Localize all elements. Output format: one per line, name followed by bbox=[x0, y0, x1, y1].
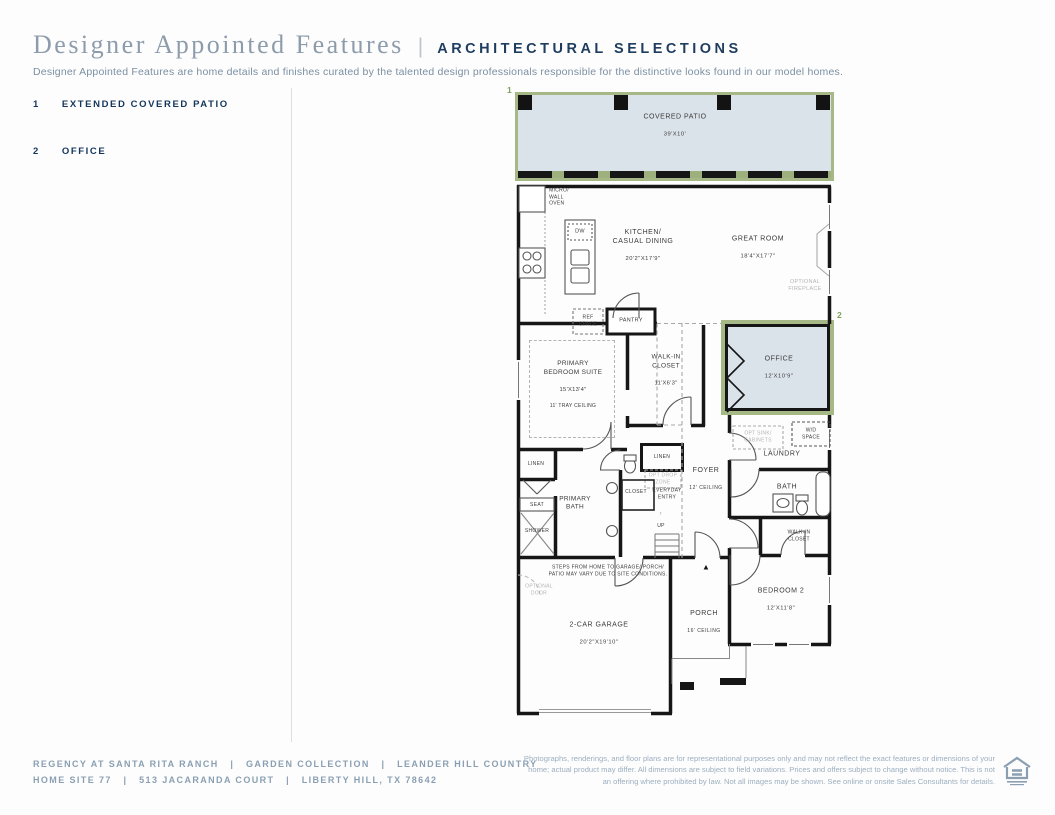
room-label-primary-bedroom: PRIMARY BEDROOM SUITE 15'X13'4" 11' TRAY… bbox=[544, 352, 602, 418]
room-label-office: OFFICE 12'X10'9" bbox=[765, 346, 794, 391]
header: Designer Appointed Features | ARCHITECTU… bbox=[33, 30, 742, 60]
label-micro-wall-oven: MICRO/ WALL OVEN bbox=[549, 187, 569, 207]
great-room-name: GREAT ROOM bbox=[732, 235, 784, 244]
up-arrow-icon: ↑ bbox=[660, 511, 663, 518]
primary-bedroom-name: PRIMARY BEDROOM SUITE bbox=[544, 361, 602, 378]
label-steps-note: STEPS FROM HOME TO GARAGE/ PORCH/ PATIO … bbox=[549, 565, 668, 578]
feature-label: EXTENDED COVERED PATIO bbox=[62, 99, 229, 110]
room-label-great-room: GREAT ROOM 18'4"X17'7" bbox=[732, 226, 784, 271]
label-wd-space: W/D SPACE bbox=[802, 428, 820, 441]
sidebar-divider bbox=[291, 88, 292, 742]
room-label-bath: BATH bbox=[777, 482, 797, 491]
page-title: Designer Appointed Features bbox=[33, 30, 404, 60]
marker-2: 2 bbox=[837, 310, 842, 320]
room-label-garage: 2-CAR GARAGE 20'2"X19'10" bbox=[570, 612, 629, 657]
foyer-ceiling: 12' CEILING bbox=[689, 485, 722, 492]
label-linen-left: LINEN bbox=[528, 461, 544, 468]
label-everyday-entry: EVERYDAY ENTRY bbox=[652, 488, 681, 501]
label-seat: SEAT bbox=[530, 502, 544, 509]
page: Designer Appointed Features | ARCHITECTU… bbox=[0, 0, 1055, 815]
marker-1: 1 bbox=[507, 85, 512, 95]
room-label-primary-bath: PRIMARY BATH bbox=[559, 496, 591, 513]
label-up: UP bbox=[657, 523, 665, 530]
garage-dims: 20'2"X19'10" bbox=[570, 640, 629, 648]
feature-label: OFFICE bbox=[62, 146, 106, 157]
covered-patio-name: COVERED PATIO bbox=[643, 113, 706, 122]
primary-bedroom-ceiling: 11' TRAY CEILING bbox=[544, 403, 602, 410]
label-optional-door: OPTIONAL DOOR bbox=[525, 584, 553, 597]
porch-name: PORCH bbox=[687, 609, 720, 618]
footer-address: REGENCY AT SANTA RITA RANCH | GARDEN COL… bbox=[33, 757, 538, 789]
room-label-porch: PORCH 16' CEILING bbox=[687, 600, 720, 644]
floorplan: 1 2 COVERED PATIO 39'X10' MICRO/ WALL OV… bbox=[515, 88, 837, 728]
label-pantry: PANTRY bbox=[619, 317, 643, 324]
category-label: ARCHITECTURAL SELECTIONS bbox=[437, 41, 741, 57]
room-label-walk-in-closet: WALK-IN CLOSET 11'X6'3" bbox=[652, 346, 681, 397]
office-dims: 12'X10'9" bbox=[765, 374, 794, 382]
footer-community-line: REGENCY AT SANTA RITA RANCH | GARDEN COL… bbox=[33, 757, 538, 773]
feature-item-2: 2 OFFICE bbox=[33, 146, 106, 157]
porch-ceiling: 16' CEILING bbox=[687, 628, 720, 635]
primary-bedroom-dims: 15'X13'4" bbox=[544, 387, 602, 395]
garage-name: 2-CAR GARAGE bbox=[570, 621, 629, 630]
walk-in-closet-name: WALK-IN CLOSET bbox=[652, 354, 681, 371]
kitchen-dims: 20'2"X17'9" bbox=[613, 256, 674, 264]
page-description: Designer Appointed Features are home det… bbox=[33, 66, 843, 78]
feature-number: 2 bbox=[33, 146, 40, 157]
title-separator: | bbox=[418, 35, 423, 59]
label-optional-fireplace: OPTIONAL FIREPLACE bbox=[788, 279, 821, 293]
label-closet: CLOSET bbox=[625, 489, 647, 496]
room-label-foyer: FOYER 12' CEILING bbox=[689, 457, 722, 501]
footer-disclaimer: Photographs, renderings, and floor plans… bbox=[523, 753, 995, 787]
room-label-laundry: LAUNDRY bbox=[764, 449, 801, 458]
feature-number: 1 bbox=[33, 99, 40, 110]
walk-in-closet-dims: 11'X6'3" bbox=[652, 380, 681, 388]
room-label-covered-patio: COVERED PATIO 39'X10' bbox=[643, 104, 706, 149]
bedroom-2-dims: 12'X11'8" bbox=[758, 606, 805, 614]
label-ref-space: REF SPACE bbox=[579, 315, 597, 328]
footer-site-line: HOME SITE 77 | 513 JACARANDA COURT | LIB… bbox=[33, 773, 538, 789]
bedroom-2-name: BEDROOM 2 bbox=[758, 587, 805, 596]
label-linen-center: LINEN bbox=[654, 454, 670, 461]
great-room-dims: 18'4"X17'7" bbox=[732, 254, 784, 262]
covered-patio-dims: 39'X10' bbox=[643, 132, 706, 140]
office-name: OFFICE bbox=[765, 355, 794, 364]
room-label-bedroom-2: BEDROOM 2 12'X11'8" bbox=[758, 578, 805, 623]
foyer-name: FOYER bbox=[689, 466, 722, 475]
label-opt-sink-cabinets: OPT SINK/ CABINETS bbox=[744, 431, 771, 444]
room-label-kitchen: KITCHEN/ CASUAL DINING 20'2"X17'9" bbox=[613, 219, 674, 273]
feature-item-1: 1 EXTENDED COVERED PATIO bbox=[33, 99, 229, 110]
label-shower: SHOWER bbox=[525, 528, 549, 535]
entry-arrow-icon: ▲ bbox=[702, 563, 710, 572]
stairs-icon bbox=[655, 534, 679, 558]
room-label-walk-in-closet-2: WALK-IN CLOSET bbox=[788, 530, 811, 543]
equal-housing-icon bbox=[1002, 756, 1032, 788]
label-opt-drop-zone: OPT DROP ZONE bbox=[649, 473, 677, 486]
kitchen-name: KITCHEN/ CASUAL DINING bbox=[613, 228, 674, 246]
label-dishwasher: DW bbox=[575, 228, 585, 235]
